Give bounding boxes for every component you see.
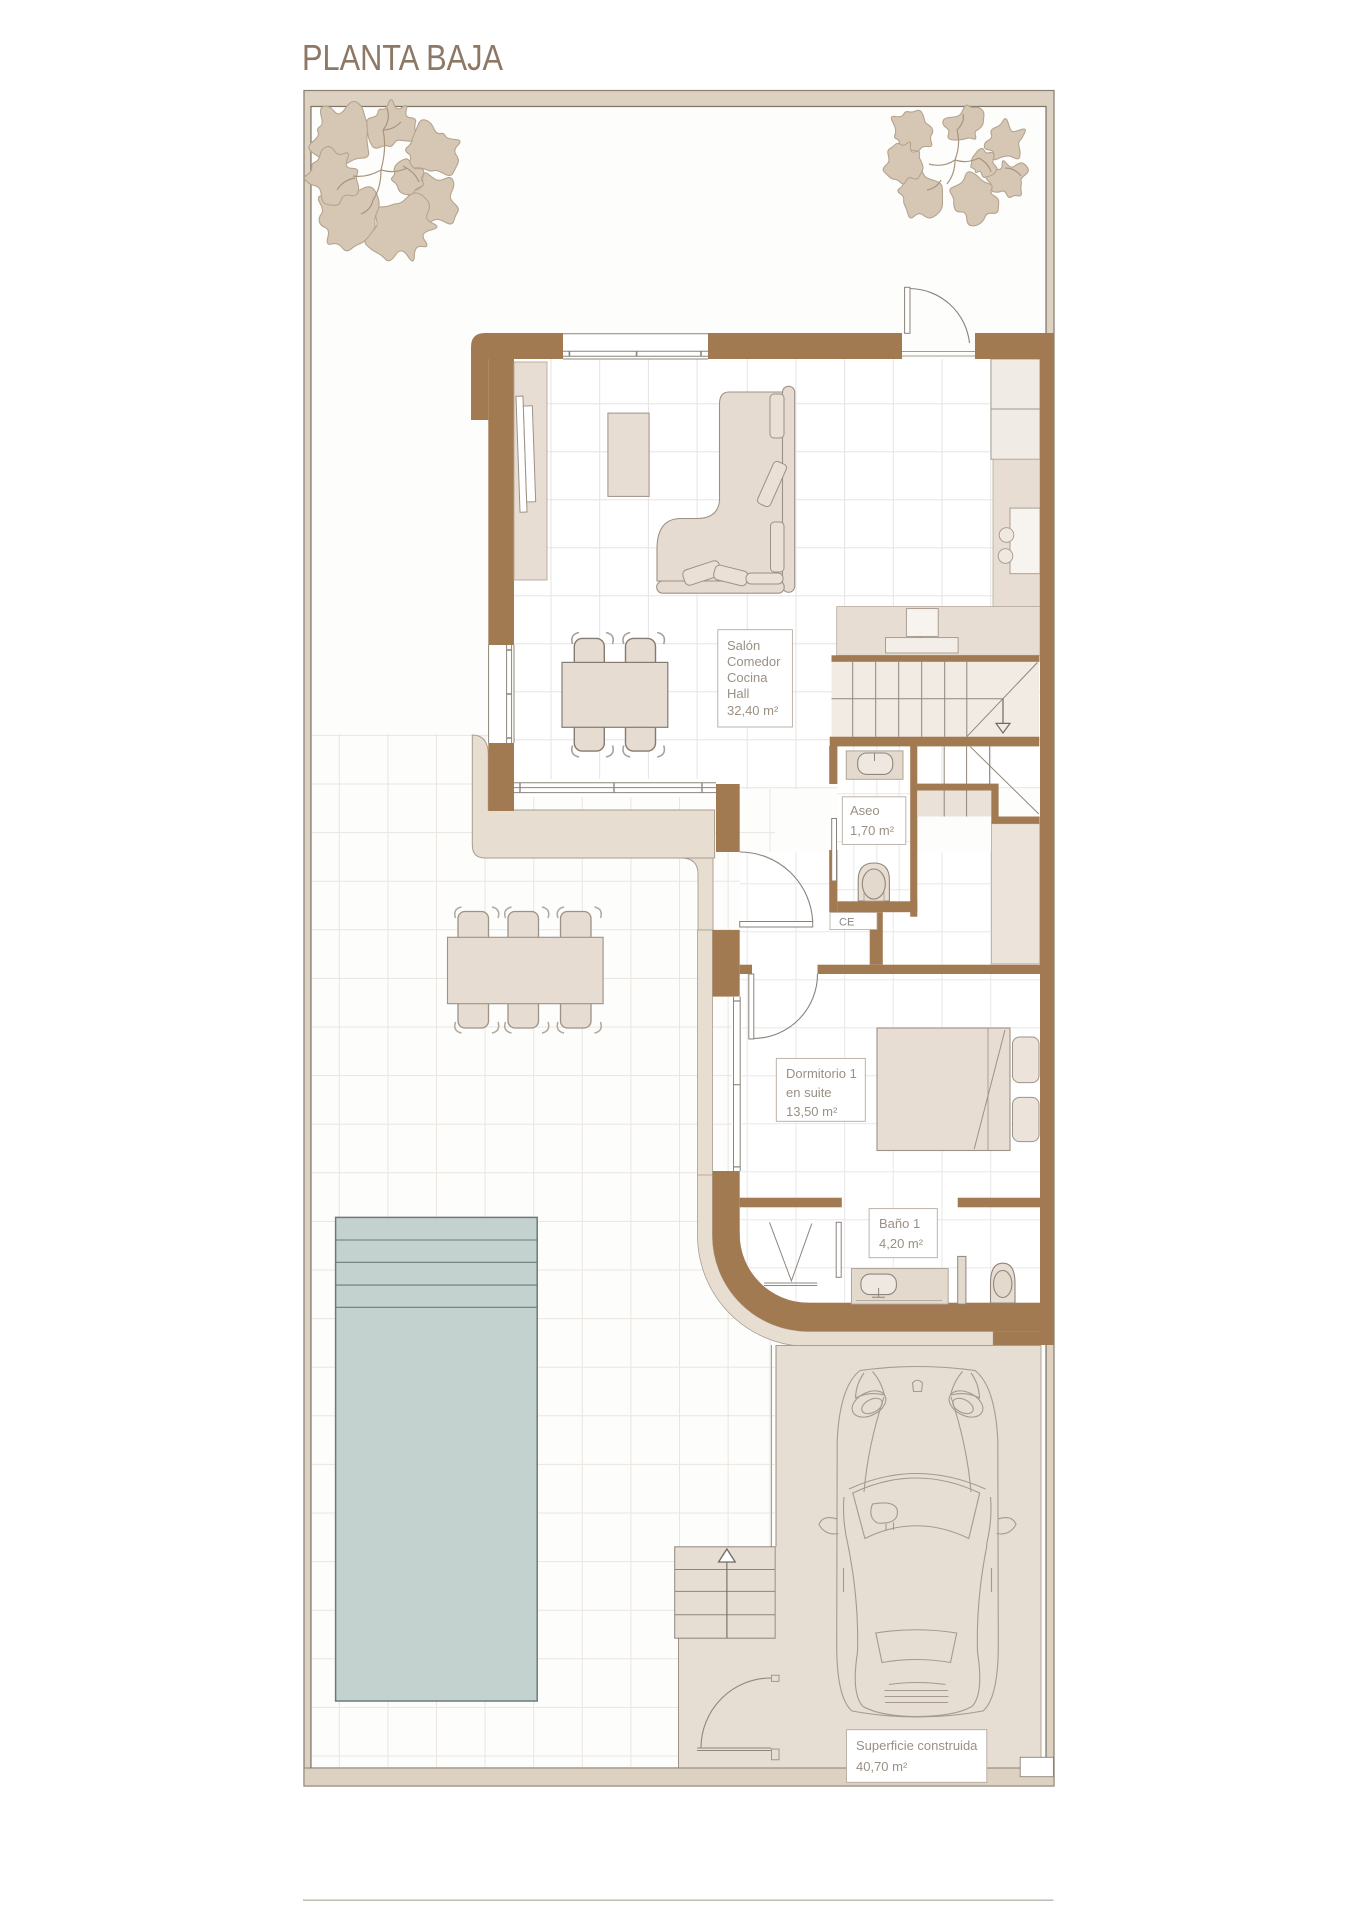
svg-text:en suite: en suite bbox=[786, 1085, 832, 1100]
svg-text:40,70 m²: 40,70 m² bbox=[856, 1759, 908, 1774]
svg-text:13,50 m²: 13,50 m² bbox=[786, 1104, 838, 1119]
svg-text:Cocina: Cocina bbox=[727, 670, 768, 685]
svg-text:Dormitorio 1: Dormitorio 1 bbox=[786, 1066, 857, 1081]
svg-text:Baño 1: Baño 1 bbox=[879, 1216, 920, 1231]
svg-text:Hall: Hall bbox=[727, 686, 750, 701]
svg-text:CE: CE bbox=[839, 917, 854, 929]
svg-text:Superficie construida: Superficie construida bbox=[856, 1738, 978, 1753]
svg-text:Comedor: Comedor bbox=[727, 654, 781, 669]
svg-text:PLANTA BAJA: PLANTA BAJA bbox=[302, 37, 503, 78]
svg-text:32,40 m²: 32,40 m² bbox=[727, 703, 779, 718]
svg-text:Salón: Salón bbox=[727, 638, 760, 653]
svg-text:Aseo: Aseo bbox=[850, 803, 880, 818]
svg-text:1,70 m²: 1,70 m² bbox=[850, 823, 895, 838]
svg-text:4,20 m²: 4,20 m² bbox=[879, 1236, 924, 1251]
